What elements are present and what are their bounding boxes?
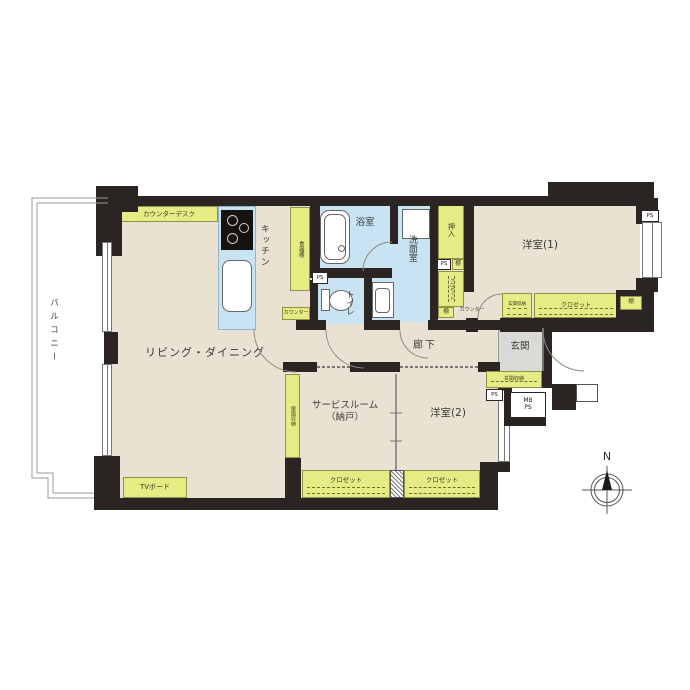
wall-segment (364, 276, 372, 324)
room-label-bath: 浴室 (344, 216, 386, 230)
closet-room1: クロゼット (534, 293, 618, 318)
dish-shelf-label: 食器棚 (297, 241, 303, 258)
sink-icon (222, 260, 252, 312)
tv-board: TVボード (123, 477, 187, 498)
wall-segment (310, 196, 320, 272)
bathtub-inner (324, 214, 346, 260)
wall-segment (498, 462, 510, 472)
entrance-counter-label: カウンター (452, 304, 492, 316)
wall-segment (283, 362, 317, 372)
genkan-storage-upper-rail (507, 308, 527, 315)
wall-segment (285, 458, 301, 498)
compass-needle-icon (602, 470, 612, 490)
window-sash (652, 223, 653, 277)
closet-room1-rail (539, 308, 613, 315)
closet-column: クロゼット (438, 271, 464, 307)
wall-segment (464, 196, 474, 292)
balcony-window-lower (102, 364, 112, 456)
closet-service-label: クロゼット (330, 477, 363, 484)
shelf-label-2: 棚 (443, 310, 449, 316)
floor-plan: カウンターデスク 食器棚 カウンター 押入 棚 クロゼット 棚 玄関収納 クロゼ… (0, 0, 690, 690)
bath-faucet-icon (338, 245, 345, 252)
wall-segment (104, 332, 118, 364)
tv-board-label: TVボード (140, 484, 170, 491)
wall-segment (296, 320, 326, 330)
ps-badge-room1: PS (641, 210, 659, 222)
shelf-label-3: 棚 (628, 300, 634, 306)
closet-room2-rail (409, 487, 475, 494)
kitchen-counter-box: カウンター (282, 307, 310, 320)
western-room-1-text: 洋室(1) (522, 239, 558, 253)
room-label-western-room-2: 洋室(2) (408, 406, 488, 422)
room-label-washroom: 洗面室 (403, 218, 419, 278)
room-label-balcony: バルコニー (44, 272, 62, 392)
outside-bottom (94, 510, 690, 690)
toilet-text: トイレ (343, 290, 354, 316)
service-room-text-2: （納戸） (326, 412, 364, 424)
ps-badge-toilet: PS (312, 272, 328, 284)
ps-label: PS (441, 261, 448, 267)
bath-text: 浴室 (355, 217, 374, 229)
room-label-kitchen: キッチン (254, 214, 272, 278)
genkan-storage-lower: 玄関収納 (486, 371, 542, 388)
dish-shelf: 食器棚 (290, 207, 310, 291)
outside-utility-box (576, 384, 598, 402)
balcony-text: バルコニー (47, 298, 58, 366)
oshiire-label: 押入 (448, 223, 455, 237)
wall-segment (350, 362, 400, 372)
hallway-text: 廊下 (413, 339, 437, 352)
hatched-column (390, 470, 404, 498)
service-room-text-1: サービスルーム (312, 400, 378, 412)
entrance-counter-text: カウンター (459, 307, 484, 314)
room-label-living-dining: リビング・ダイニング (120, 344, 290, 362)
entrance-text: 玄関 (510, 341, 529, 353)
ps-badge-entrance: PS (486, 389, 503, 401)
ps-label: PS (491, 392, 498, 398)
closet-service: クロゼット (302, 470, 390, 498)
washbasin-icon (372, 282, 394, 318)
ps-label: PS (317, 275, 324, 281)
wall-storage-label: 壁面収納 (290, 406, 295, 426)
closet-room2: クロゼット (404, 470, 480, 498)
genkan-storage-lower-label: 玄関収納 (504, 377, 524, 382)
room-label-toilet: トイレ (342, 281, 356, 325)
room-label-hallway: 廊下 (400, 338, 450, 352)
shelf-column: 棚 (452, 259, 464, 270)
ps-badge-column: PS (437, 259, 451, 270)
ps-label: PS (524, 405, 531, 412)
wall-segment (428, 320, 502, 330)
wall-segment (96, 196, 554, 206)
counter-desk-label: カウンターデスク (143, 211, 195, 218)
shelf-label-1: 棚 (455, 262, 461, 268)
stove-icon (221, 210, 253, 250)
wall-segment (94, 498, 498, 510)
kitchen-text: キッチン (257, 224, 269, 268)
washbasin-inner (375, 288, 390, 313)
wall-segment (552, 384, 576, 410)
ps-label: PS (647, 213, 654, 219)
wall-segment (364, 320, 400, 330)
closet-room1-label: クロゼット (561, 303, 591, 309)
closet-service-rail (307, 487, 385, 494)
room-label-service-room: サービスルーム （納戸） (298, 396, 392, 428)
shelf-room1: 棚 (620, 296, 642, 310)
western-room-2-text: 洋室(2) (430, 407, 466, 421)
genkan-storage-upper-label: 玄関収納 (508, 303, 526, 308)
window-sash (107, 243, 108, 331)
washroom-text: 洗面室 (405, 235, 417, 262)
kitchen-counter-label: カウンター (283, 311, 308, 316)
room-label-entrance: 玄関 (500, 340, 540, 354)
wall-segment (500, 318, 618, 332)
genkan-storage-lower-rail (491, 381, 537, 388)
closet-room2-label: クロゼット (426, 477, 459, 484)
wall-segment (480, 462, 498, 510)
balcony-window-upper (102, 242, 112, 332)
room-label-western-room-1: 洋室(1) (500, 238, 580, 254)
wall-segment (542, 326, 552, 388)
genkan-storage-upper: 玄関収納 (502, 293, 532, 318)
wall-segment (390, 196, 398, 244)
room1-window (642, 222, 662, 278)
closet-column-label: クロゼット (449, 278, 454, 301)
mb-ps-box: MB PS (510, 392, 546, 418)
oshiire: 押入 (438, 201, 464, 259)
compass: N (572, 446, 642, 526)
living-dining-text: リビング・ダイニング (145, 346, 265, 360)
compass-north-label: N (603, 450, 611, 463)
window-sash (107, 365, 108, 455)
